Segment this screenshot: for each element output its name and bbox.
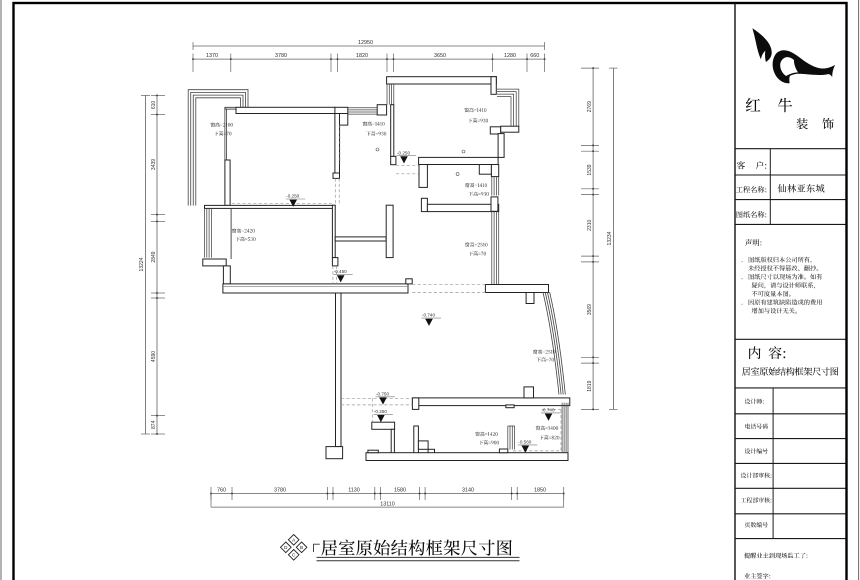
svg-text:1850: 1850 [534,488,546,494]
svg-text:760: 760 [217,488,226,494]
svg-text:-0.250: -0.250 [374,409,387,414]
svg-text:-0.740: -0.740 [422,313,435,318]
svg-text:1820: 1820 [356,53,368,59]
svg-text:660: 660 [530,53,539,59]
svg-text:1370: 1370 [206,53,218,59]
svg-text:874: 874 [151,420,157,429]
svg-text:13224: 13224 [139,257,145,271]
svg-text:3780: 3780 [275,53,287,59]
svg-text:2310: 2310 [587,220,593,231]
svg-text:1580: 1580 [394,488,406,494]
svg-text:-0.250: -0.250 [286,194,299,199]
svg-text:2769: 2769 [587,101,593,112]
svg-text:2849: 2849 [151,251,157,262]
svg-text:3140: 3140 [462,488,474,494]
svg-text:1130: 1130 [348,488,360,494]
svg-text:3780: 3780 [274,488,286,494]
svg-text:-0.560: -0.560 [518,440,531,445]
svg-text:13110: 13110 [380,501,395,507]
svg-text:3439: 3439 [151,159,157,170]
svg-text:3650: 3650 [434,53,446,59]
svg-text:12950: 12950 [358,40,373,46]
svg-text:4590: 4590 [151,351,157,362]
svg-text:-0.450: -0.450 [334,269,347,274]
svg-text:B: B [300,545,303,550]
svg-text:13234: 13234 [607,231,613,245]
svg-text:1280: 1280 [504,53,516,59]
svg-text:-0.740: -0.740 [542,408,555,413]
svg-text:1539: 1539 [587,164,593,175]
svg-text:3569: 3569 [587,304,593,315]
svg-text:610: 610 [151,101,157,110]
svg-text:1819: 1819 [587,380,593,391]
svg-text:-0.250: -0.250 [397,150,410,155]
svg-text:-0.750: -0.750 [376,391,389,396]
